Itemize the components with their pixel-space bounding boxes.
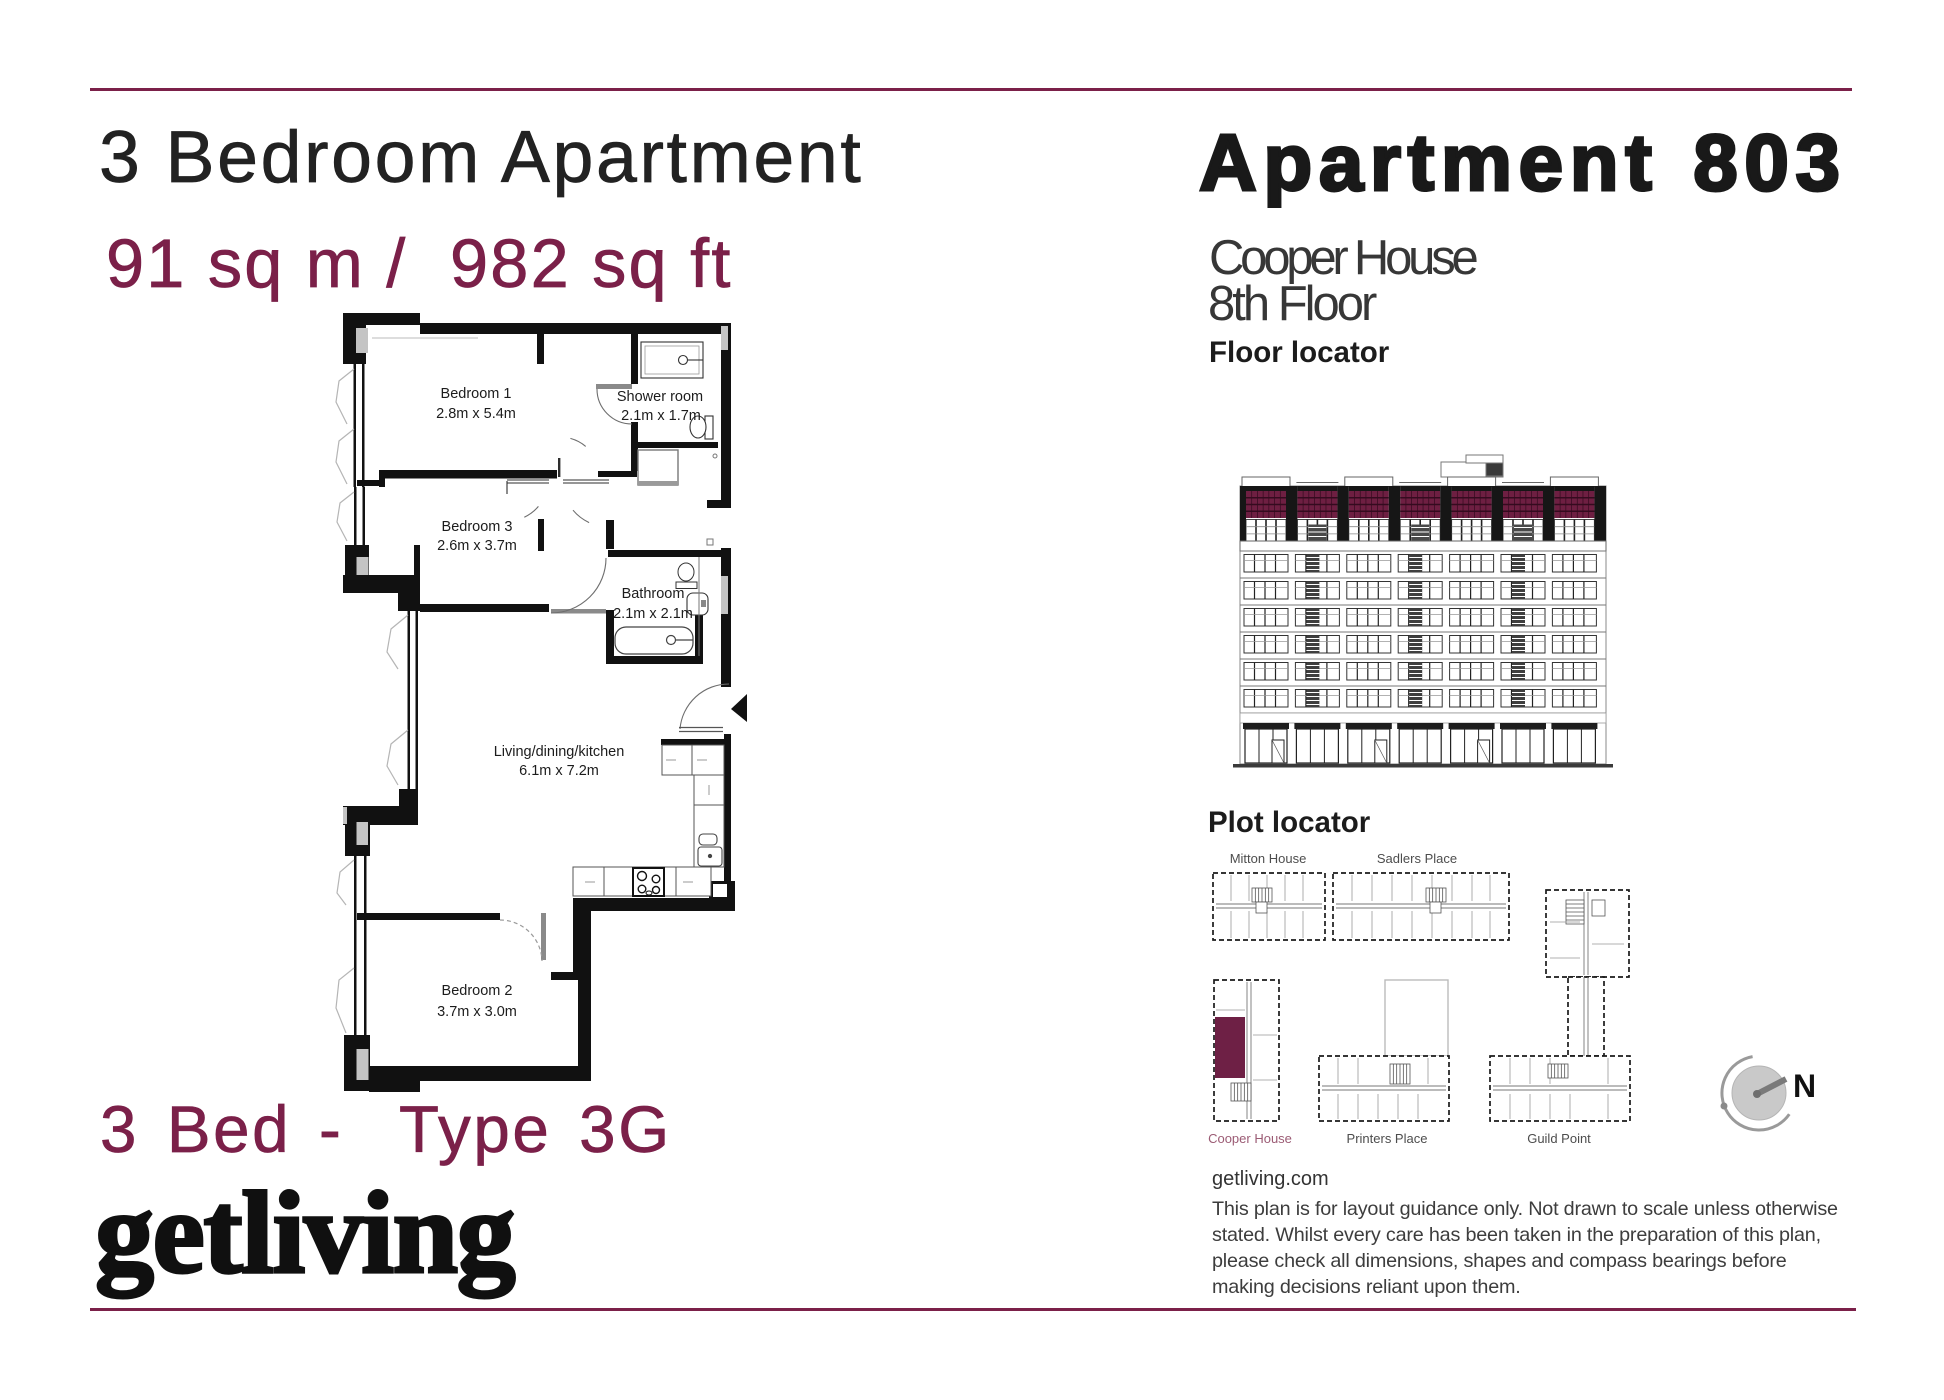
svg-text:6.1m x 7.2m: 6.1m x 7.2m	[519, 763, 599, 779]
svg-text:Shower room: Shower room	[617, 389, 703, 405]
svg-text:Bathroom: Bathroom	[622, 586, 685, 602]
svg-text:Printers Place: Printers Place	[1347, 1131, 1428, 1146]
svg-text:Bedroom 1: Bedroom 1	[441, 386, 512, 402]
svg-text:Cooper House: Cooper House	[1208, 1131, 1292, 1146]
svg-text:Mitton House: Mitton House	[1230, 851, 1307, 866]
svg-text:2.1m x 2.1m: 2.1m x 2.1m	[613, 606, 693, 622]
svg-text:2.6m x 3.7m: 2.6m x 3.7m	[437, 538, 517, 554]
svg-text:Guild Point: Guild Point	[1527, 1131, 1591, 1146]
svg-text:Sadlers Place: Sadlers Place	[1377, 851, 1457, 866]
svg-text:3.7m x 3.0m: 3.7m x 3.0m	[437, 1004, 517, 1020]
svg-text:2.1m x 1.7m: 2.1m x 1.7m	[621, 408, 701, 424]
svg-text:2.8m x 5.4m: 2.8m x 5.4m	[436, 406, 516, 422]
svg-text:Living/dining/kitchen: Living/dining/kitchen	[494, 744, 625, 760]
svg-text:Bedroom 3: Bedroom 3	[442, 519, 513, 535]
svg-text:Bedroom 2: Bedroom 2	[442, 983, 513, 999]
svg-text:N: N	[1793, 1068, 1816, 1104]
